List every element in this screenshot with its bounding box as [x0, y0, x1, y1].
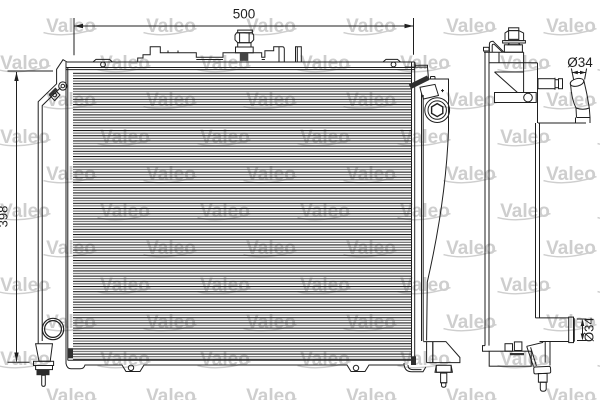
svg-text:398: 398 — [0, 206, 11, 228]
svg-text:Ø34: Ø34 — [567, 55, 593, 70]
svg-text:500: 500 — [233, 7, 256, 22]
svg-text:Ø34: Ø34 — [582, 317, 597, 342]
